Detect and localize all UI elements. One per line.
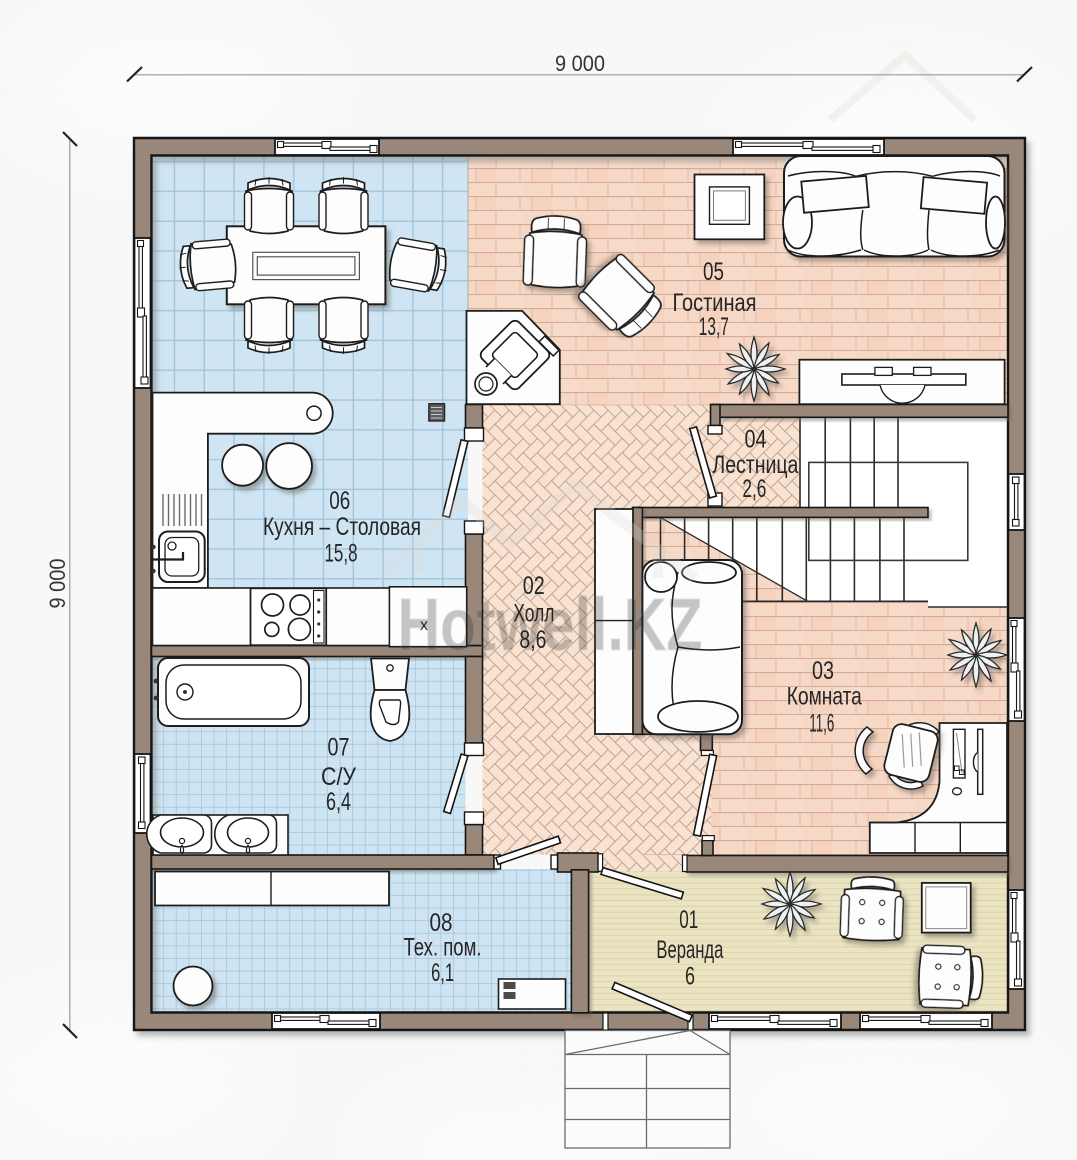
svg-text:07: 07 bbox=[328, 734, 350, 762]
svg-text:С/У: С/У bbox=[321, 763, 356, 791]
svg-text:2,6: 2,6 bbox=[742, 475, 766, 503]
svg-text:6: 6 bbox=[685, 963, 695, 991]
svg-text:05: 05 bbox=[703, 258, 724, 286]
svg-text:9 000: 9 000 bbox=[555, 51, 605, 76]
svg-text:03: 03 bbox=[812, 657, 834, 685]
svg-text:8,6: 8,6 bbox=[519, 626, 546, 654]
svg-text:Тех. пом.: Тех. пом. bbox=[404, 934, 482, 962]
svg-text:13,7: 13,7 bbox=[699, 313, 729, 341]
svg-text:Веранда: Веранда bbox=[656, 936, 723, 964]
svg-text:15,8: 15,8 bbox=[325, 540, 358, 568]
svg-text:6,1: 6,1 bbox=[431, 959, 454, 987]
svg-text:06: 06 bbox=[329, 487, 350, 515]
svg-text:9 000: 9 000 bbox=[45, 559, 70, 609]
svg-text:Комната: Комната bbox=[787, 683, 862, 711]
svg-text:01: 01 bbox=[679, 906, 698, 934]
svg-text:04: 04 bbox=[745, 426, 767, 454]
svg-text:Кухня – Столовая: Кухня – Столовая bbox=[263, 513, 421, 541]
svg-text:Холл: Холл bbox=[513, 600, 554, 628]
svg-text:02: 02 bbox=[523, 572, 545, 600]
svg-text:11,6: 11,6 bbox=[809, 710, 834, 738]
svg-text:6,4: 6,4 bbox=[326, 788, 351, 816]
